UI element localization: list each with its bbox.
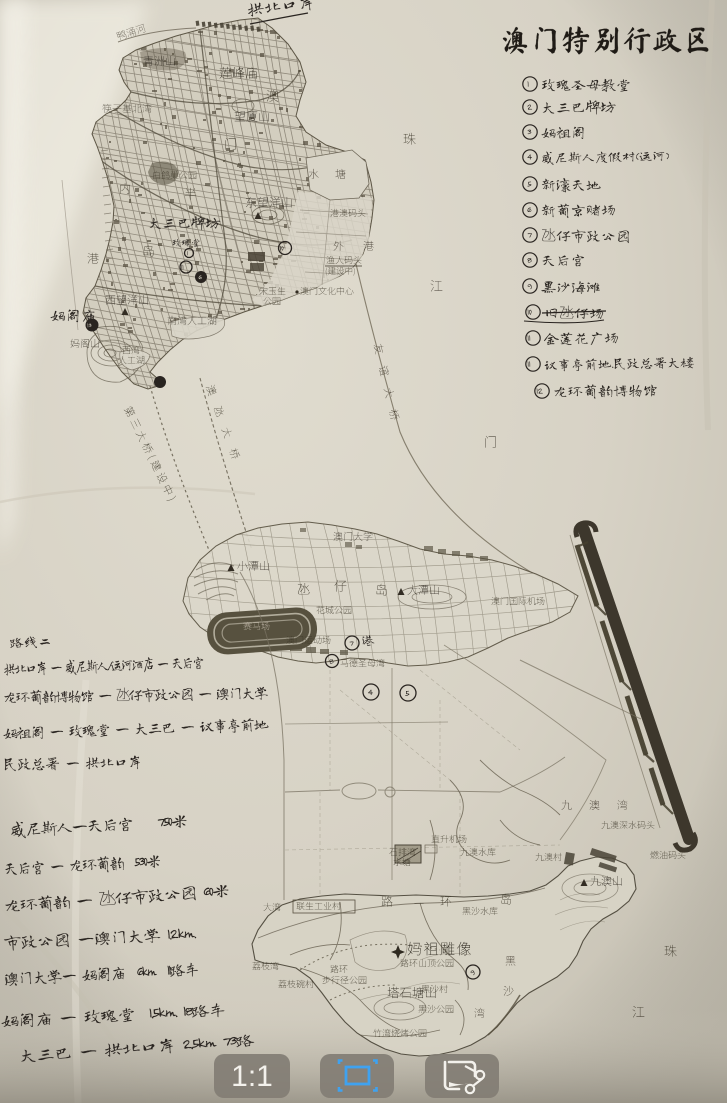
svg-text:1:1: 1:1 <box>231 1060 273 1093</box>
